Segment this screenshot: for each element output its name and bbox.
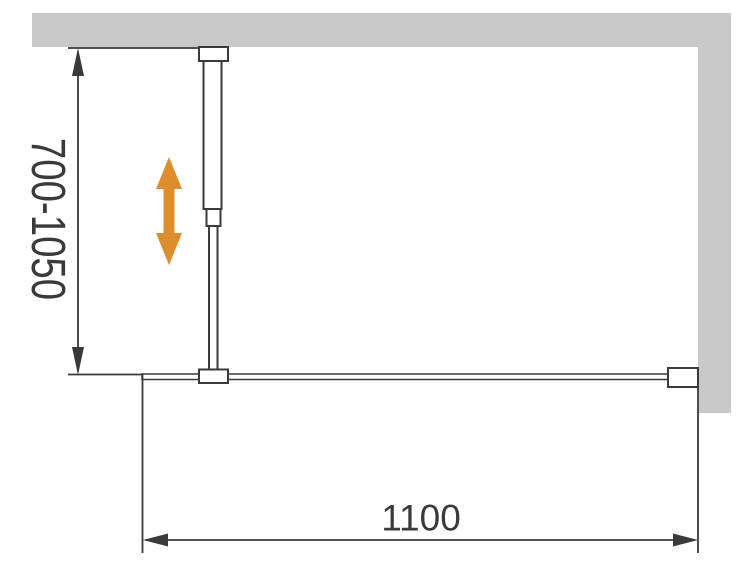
support-bar-lower-tube bbox=[209, 226, 218, 370]
diagram-drawing bbox=[0, 0, 750, 562]
height-range-dimension-label: 700-1050 bbox=[23, 138, 71, 300]
wall-mount-profile bbox=[668, 368, 698, 387]
arrow-up-icon bbox=[72, 48, 84, 76]
arrow-down-icon bbox=[72, 347, 84, 375]
width-dimension-label: 1100 bbox=[381, 500, 461, 537]
arrow-left-icon bbox=[143, 534, 168, 547]
ceiling-bracket bbox=[199, 47, 228, 61]
arrow-right-icon bbox=[673, 534, 698, 547]
wall-top bbox=[32, 13, 731, 47]
wall-right bbox=[698, 47, 731, 413]
vertical-double-arrow-icon bbox=[156, 157, 182, 265]
support-bar bbox=[199, 47, 228, 383]
support-bar-collar bbox=[207, 209, 221, 226]
glass-connector bbox=[199, 370, 228, 384]
support-bar-upper-tube bbox=[204, 61, 222, 209]
installation-diagram: 700-1050 1100 bbox=[0, 0, 750, 562]
vertical-dimension bbox=[68, 48, 199, 375]
